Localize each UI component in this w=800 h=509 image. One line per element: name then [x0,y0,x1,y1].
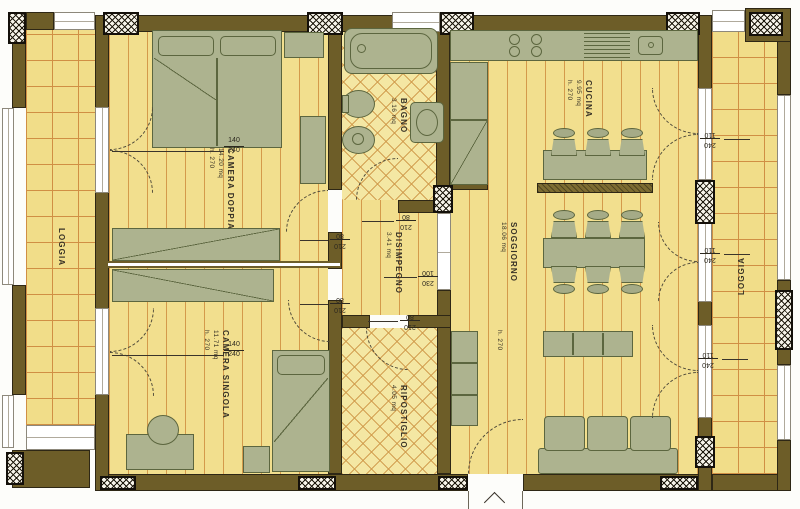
dresser [300,116,326,184]
entry-porch-line-left [468,491,469,509]
label-loggia-left: LOGGIA [56,228,66,266]
wall-loggia-left-b [12,285,26,395]
wardrobe-camera-doppia [112,228,280,261]
entry-porch-line-right [522,491,523,509]
sofa-base [538,448,678,474]
drainboard [584,33,630,58]
kitchen-stool-2 [585,128,611,156]
label-loggia-right: LOGGIA [737,257,747,295]
wall-bottom-left [95,474,468,491]
sofa-cushion-1 [544,416,585,451]
dining-chair-6 [619,266,645,294]
pillow-left [158,36,214,56]
door-soggiorno-loggia-lower [698,325,712,418]
window-camera-singola [95,308,109,395]
pier-bottom-3 [438,476,468,490]
wall-loggia-left-top-stub [26,12,54,30]
stove-burner-3 [509,46,520,57]
bed-center-line [216,58,218,146]
dim-leader-9 [724,254,750,255]
dining-chair-3 [619,210,645,238]
label-camera-doppia: CAMERA DOPPIA 14.20 mq h. 270 [207,148,235,230]
bed-fold-line [154,58,216,100]
dining-chair-1 [551,210,577,238]
bidet-drain [352,133,364,145]
toilet-tank [342,95,349,113]
bench [284,32,324,58]
window-loggia-right-upper [777,95,791,280]
pier-bottom-4 [660,476,698,490]
pier-bottom-1 [100,476,136,490]
dim-door-loggia-soggiorno-dn: 240 110 [698,350,718,368]
label-cucina: CUCINA 9.95 mq h. 270 [565,80,593,118]
opening-loggia-left-top [54,12,95,30]
dim-door-camera-doppia: 210 80 [330,231,350,249]
kitchen-stool-3 [619,128,645,156]
wardrobe-camera-singola [112,269,274,302]
opening-disimpegno-soggiorno [437,213,451,290]
bathroom-sink-basin [416,109,438,136]
pillow-right [220,36,276,56]
kitchen-tall-unit-lower [450,120,488,185]
sofa-cushion-2 [587,416,628,451]
pier-loggia-left-bottom [6,452,24,485]
dim-leader-5 [300,304,328,305]
wall-partition-wardrobes [108,261,340,268]
window-loggia-left-lower [2,395,14,448]
label-camera-singola: CAMERA SINGOLA 11.71 mq h. 270 [202,330,230,419]
dining-table [543,238,645,268]
floor-plan: 140 240 140 240 210 80 210 80 210 80 230… [0,0,800,509]
pier-right-wall-low [695,436,715,468]
nightstand [243,446,270,473]
wall-loggia-right-c [777,440,791,491]
wall-ripostiglio-top-left [342,315,370,328]
dim-door-camera-singola: 210 80 [330,295,350,313]
dim-door-bagno: 210 80 [396,212,416,230]
opening-loggia-left-bottom [26,425,95,450]
storage-cabinet [451,331,478,426]
kitchen-tall-unit-upper [450,62,488,120]
wall-camera-singola-right [328,300,342,474]
sofa-cushion-3 [630,416,671,451]
stove-burner-1 [509,34,520,45]
dim-leader-8 [724,139,750,140]
floor-loggia-right [712,32,777,474]
dim-leader-7 [368,321,398,322]
kitchen-stool-1 [551,128,577,156]
single-bed-fold [274,378,328,442]
pier-loggia-left-top [8,12,26,44]
stove-burner-2 [531,34,542,45]
sideboard [543,331,633,357]
label-disimpegno: DISIMPEGNO 3.41 mq [384,232,403,294]
dining-chair-2 [585,210,611,238]
window-loggia-left-upper [2,108,14,285]
single-bed-pillow [277,355,325,375]
label-soggiorno: SOGGIORNO 18.06 mq [499,222,518,282]
label-bagno: BAGNO 3.16 mq [389,98,408,133]
label-ripostiglio: RIPOSTIGLIO 4.05 mq [389,385,408,449]
wall-left-main [95,15,109,491]
kitchen-sink-drain [648,42,654,48]
dim-passage-soggiorno: 230 100 [418,268,438,286]
desk-stool [147,415,179,445]
dim-door-loggia-cucina: 240 110 [700,130,720,148]
pier-spine [433,185,453,213]
sideboard-divider-2 [602,333,604,355]
pier-right-wall-mid [695,180,715,224]
dim-leader-4 [300,240,328,241]
bathtub-drain [357,44,366,53]
window-loggia-right-lower [777,365,791,440]
stove-burner-4 [531,46,542,57]
half-wall-cucina-soggiorno [537,183,653,193]
wall-camera-doppia-bagno [328,28,342,190]
dining-chair-4 [551,266,577,294]
dim-door-loggia-soggiorno-up: 240 110 [700,245,720,263]
entry-arrow-icon [484,492,505,509]
opening-loggia-right-top [712,10,745,32]
dining-chair-5 [585,266,611,294]
label-soggiorno-height: h. 270 [495,330,504,350]
window-camera-doppia [95,107,109,193]
dim-door-ripostiglio: 210 80 [400,312,420,330]
pier-loggia-right-top [749,12,783,36]
pier-loggia-right-mid [775,290,793,350]
storage-cabinet-shelf-1 [452,362,477,364]
sideboard-divider-1 [572,333,574,355]
dim-leader-10 [722,359,748,360]
pier-top-1 [103,12,139,35]
dim-leader-3 [362,221,394,222]
pier-bottom-2 [298,476,336,490]
storage-cabinet-shelf-2 [452,394,477,396]
